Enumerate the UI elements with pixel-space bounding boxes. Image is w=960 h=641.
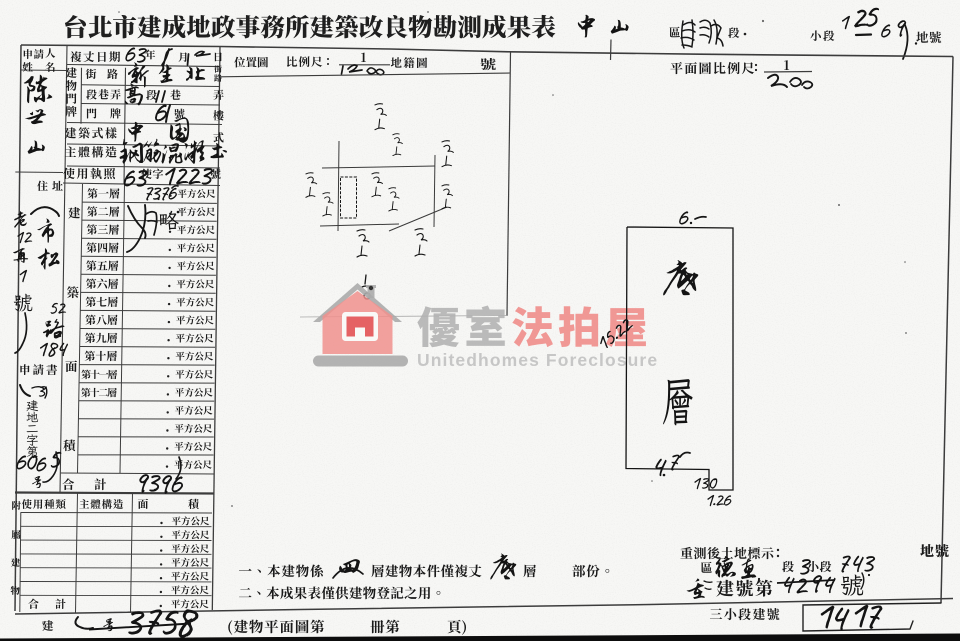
svg-text:Unitedhomes Foreclosure: Unitedhomes Foreclosure — [417, 350, 658, 370]
